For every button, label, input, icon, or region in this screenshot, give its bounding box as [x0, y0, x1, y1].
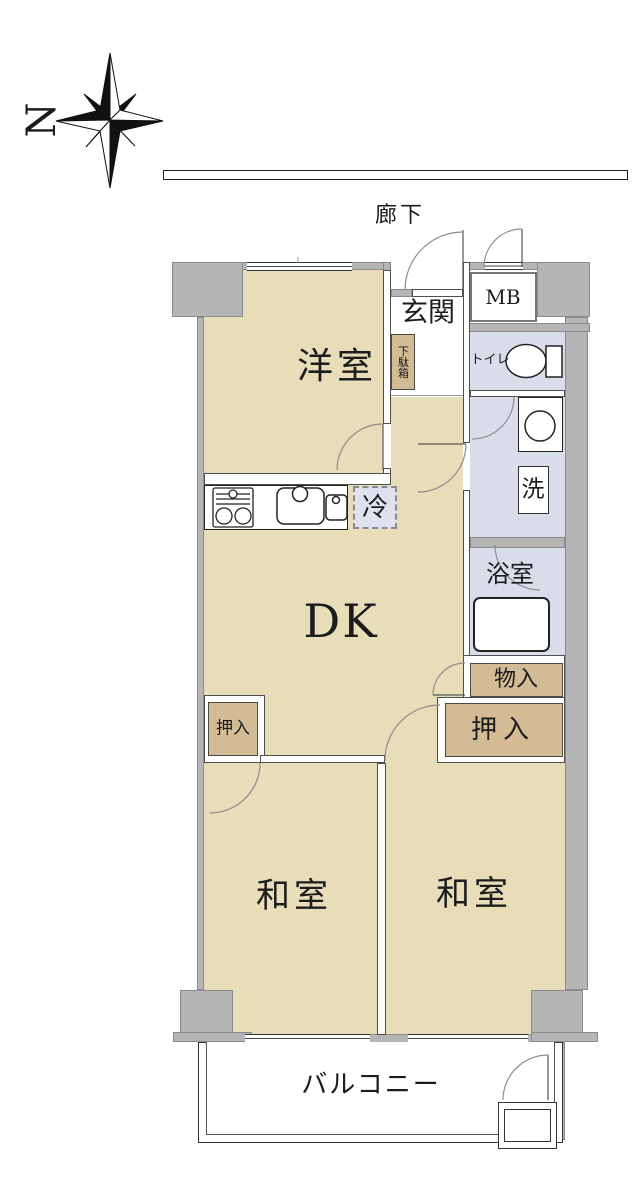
wall-toilet-washroom	[470, 390, 565, 397]
dk-label: DK	[303, 598, 378, 644]
wall-room-divider	[377, 763, 386, 1035]
balcony-label: バルコニー	[301, 1072, 440, 1098]
shoe-cabinet-label: 下駄箱	[398, 346, 409, 379]
compass-rose-icon	[56, 53, 163, 188]
wall-toilet-top	[463, 323, 590, 332]
wall-left	[197, 317, 204, 990]
entrance-label: 玄関	[401, 300, 455, 327]
wall-dk-wet-column	[463, 262, 470, 443]
refrigerator-label: 冷	[362, 495, 388, 521]
corridor-edge-line	[163, 170, 628, 180]
toilet-label: トイレ	[470, 354, 509, 367]
wall-western-entrance	[383, 270, 391, 424]
corridor-label: 廊下	[375, 205, 425, 227]
storage-label: 物入	[494, 669, 538, 691]
washer-label: 洗	[522, 479, 545, 502]
japanese-room-left-label: 和室	[256, 879, 332, 913]
kitchen-counter	[204, 485, 348, 530]
wall-right	[565, 317, 588, 990]
room-dk	[391, 397, 463, 473]
floor-plan: N 廊下 玄関 MB トイレ 下駄箱 洋室 冷 洗 浴室 DK 物入 押入 押入…	[0, 0, 634, 1200]
wall-western-kitchen	[204, 473, 391, 485]
closet-left-label: 押入	[216, 721, 250, 738]
wall-bath-divider	[470, 537, 565, 548]
door-arc-entrance	[405, 232, 463, 290]
bathtub	[473, 597, 550, 652]
pillar-bottom-right-flange	[531, 1032, 598, 1042]
wall-dk-japanese	[260, 755, 385, 763]
japanese-room-right-label: 和室	[436, 877, 512, 911]
bathroom-label: 浴室	[486, 562, 534, 586]
entrance-stub-wall	[391, 289, 412, 297]
hatch-box-inner	[504, 1109, 551, 1142]
room-western	[243, 270, 383, 317]
meter-box-door-gap	[485, 262, 523, 270]
window-western-room	[247, 262, 352, 271]
wall-dk-wet-column	[463, 490, 470, 657]
western-room-label: 洋室	[297, 349, 377, 385]
pillar-bottom-left-flange	[173, 1032, 252, 1042]
room-western	[204, 317, 383, 475]
compass-north-label: N	[22, 103, 62, 138]
pillar-top-left	[172, 262, 243, 317]
closet-right-label: 押入	[471, 717, 535, 743]
meter-box-label: MB	[485, 287, 520, 307]
entrance-threshold	[412, 289, 463, 297]
pillar-top-right	[537, 262, 590, 317]
washing-machine-box	[518, 397, 563, 452]
